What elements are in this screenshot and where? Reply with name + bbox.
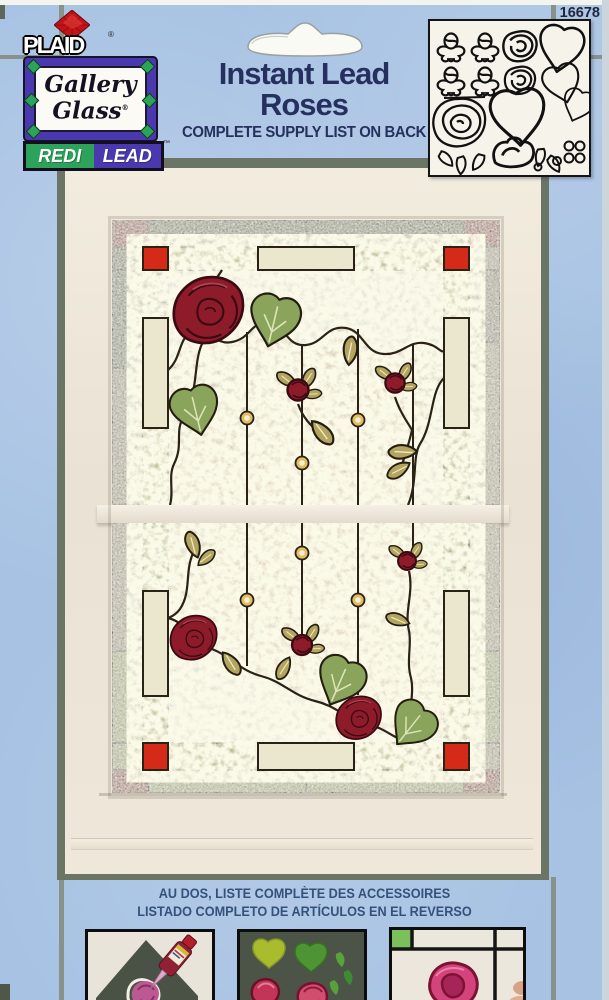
lead-label: LEAD: [94, 144, 162, 168]
paint-colors-illustration: [240, 932, 364, 1000]
package-front: PLAID ® Gallery Glass® REDI LEAD ™ Insta…: [0, 0, 609, 1000]
redi-label: REDI: [26, 144, 94, 168]
hang-hole: [240, 20, 370, 58]
title-line2: Roses: [158, 89, 450, 120]
scan-edge: [602, 0, 609, 1000]
redi-lead-logo: REDI LEAD ™: [23, 141, 164, 171]
step-photo-finished-window: [389, 927, 526, 1000]
scan-edge: [0, 5, 5, 19]
footer-french-text: AU DOS, LISTE COMPLÈTE DES ACCESSOIRES: [75, 886, 535, 901]
plaid-wordmark: PLAID: [23, 32, 121, 59]
lead-pattern-panel: [428, 19, 591, 177]
step-photo-paint-colors: [237, 929, 367, 1000]
registered-mark: ®: [108, 30, 114, 39]
title-line1: Instant Lead: [158, 58, 450, 89]
gallery-glass-line2: Glass®: [36, 96, 145, 124]
gallery-glass-panel: Gallery Glass®: [34, 66, 147, 132]
scan-edge: [0, 984, 10, 1000]
gallery-glass-line1: Gallery: [36, 74, 145, 96]
stained-glass-bottom-sash: [112, 523, 500, 793]
window-sill: [71, 838, 533, 850]
product-title: Instant Lead Roses: [158, 58, 450, 120]
registered-mark: ®: [122, 103, 129, 112]
supply-note: COMPLETE SUPPLY LIST ON BACK: [154, 124, 454, 142]
item-number: 16678: [500, 5, 600, 21]
plaid-logo: PLAID ®: [24, 10, 120, 60]
step-photo-apply-lead: [85, 929, 215, 1000]
rose-pattern-lineart-icon: [430, 21, 589, 175]
tile-grout-line: [59, 878, 64, 1000]
gallery-glass-logo: Gallery Glass®: [23, 56, 158, 142]
apply-lead-illustration: [88, 932, 212, 1000]
window-photo: [57, 158, 549, 880]
finished-window-illustration: [392, 930, 523, 1000]
stained-glass-top-sash: [112, 220, 500, 505]
tile-grout-line: [551, 877, 556, 1000]
footer-spanish-text: LISTADO COMPLETO DE ARTÍCULOS EN EL REVE…: [75, 904, 535, 919]
